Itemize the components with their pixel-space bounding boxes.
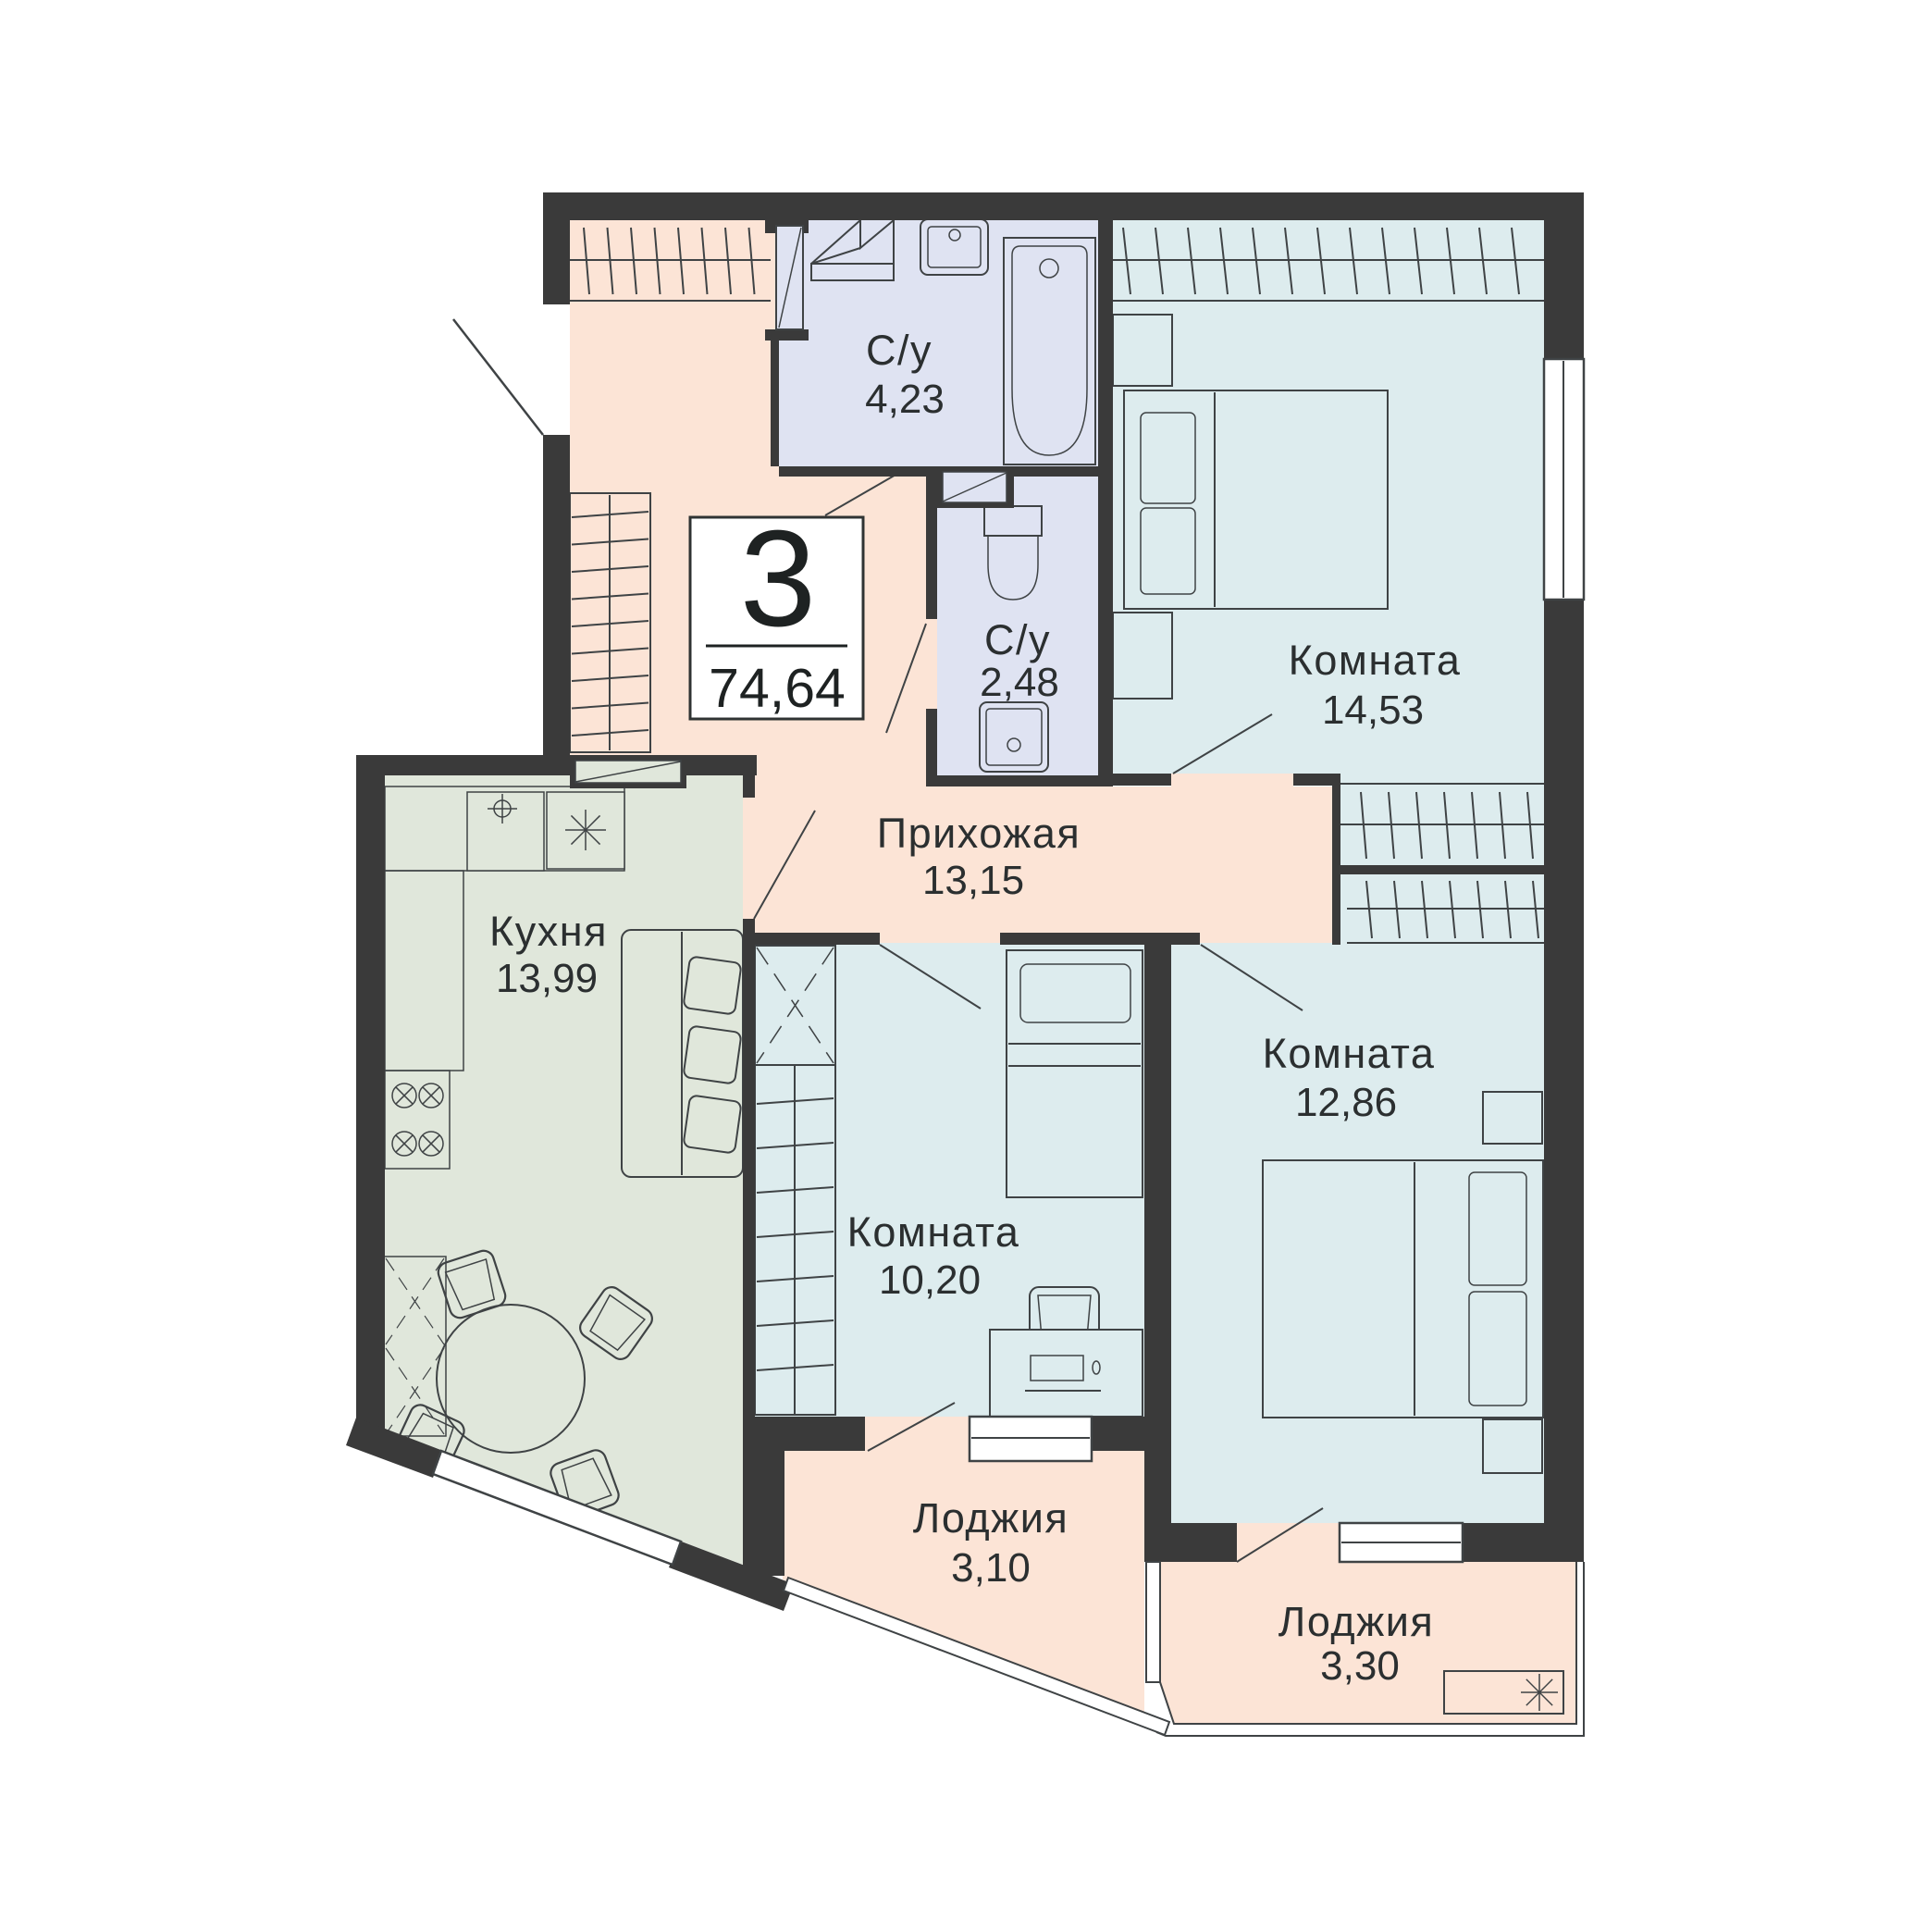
svg-text:74,64: 74,64 bbox=[709, 658, 846, 719]
svg-text:3,30: 3,30 bbox=[1320, 1643, 1400, 1689]
svg-text:13,99: 13,99 bbox=[496, 956, 598, 1001]
svg-text:Прихожая: Прихожая bbox=[877, 810, 1081, 857]
svg-text:С/у: С/у bbox=[984, 616, 1051, 663]
svg-text:С/у: С/у bbox=[866, 327, 933, 374]
svg-text:13,15: 13,15 bbox=[922, 858, 1024, 903]
svg-text:2,48: 2,48 bbox=[980, 660, 1059, 705]
svg-text:Комната: Комната bbox=[1289, 637, 1462, 684]
svg-text:14,53: 14,53 bbox=[1322, 687, 1424, 733]
svg-text:10,20: 10,20 bbox=[879, 1257, 981, 1303]
svg-text:12,86: 12,86 bbox=[1295, 1080, 1397, 1125]
svg-text:Комната: Комната bbox=[1263, 1030, 1436, 1077]
svg-text:Лоджия: Лоджия bbox=[1278, 1598, 1434, 1645]
svg-text:Лоджия: Лоджия bbox=[913, 1494, 1068, 1542]
svg-text:Кухня: Кухня bbox=[489, 908, 608, 955]
svg-text:3: 3 bbox=[740, 502, 816, 655]
svg-text:3,10: 3,10 bbox=[951, 1545, 1031, 1591]
svg-text:Комната: Комната bbox=[847, 1208, 1020, 1256]
svg-text:4,23: 4,23 bbox=[865, 377, 945, 422]
